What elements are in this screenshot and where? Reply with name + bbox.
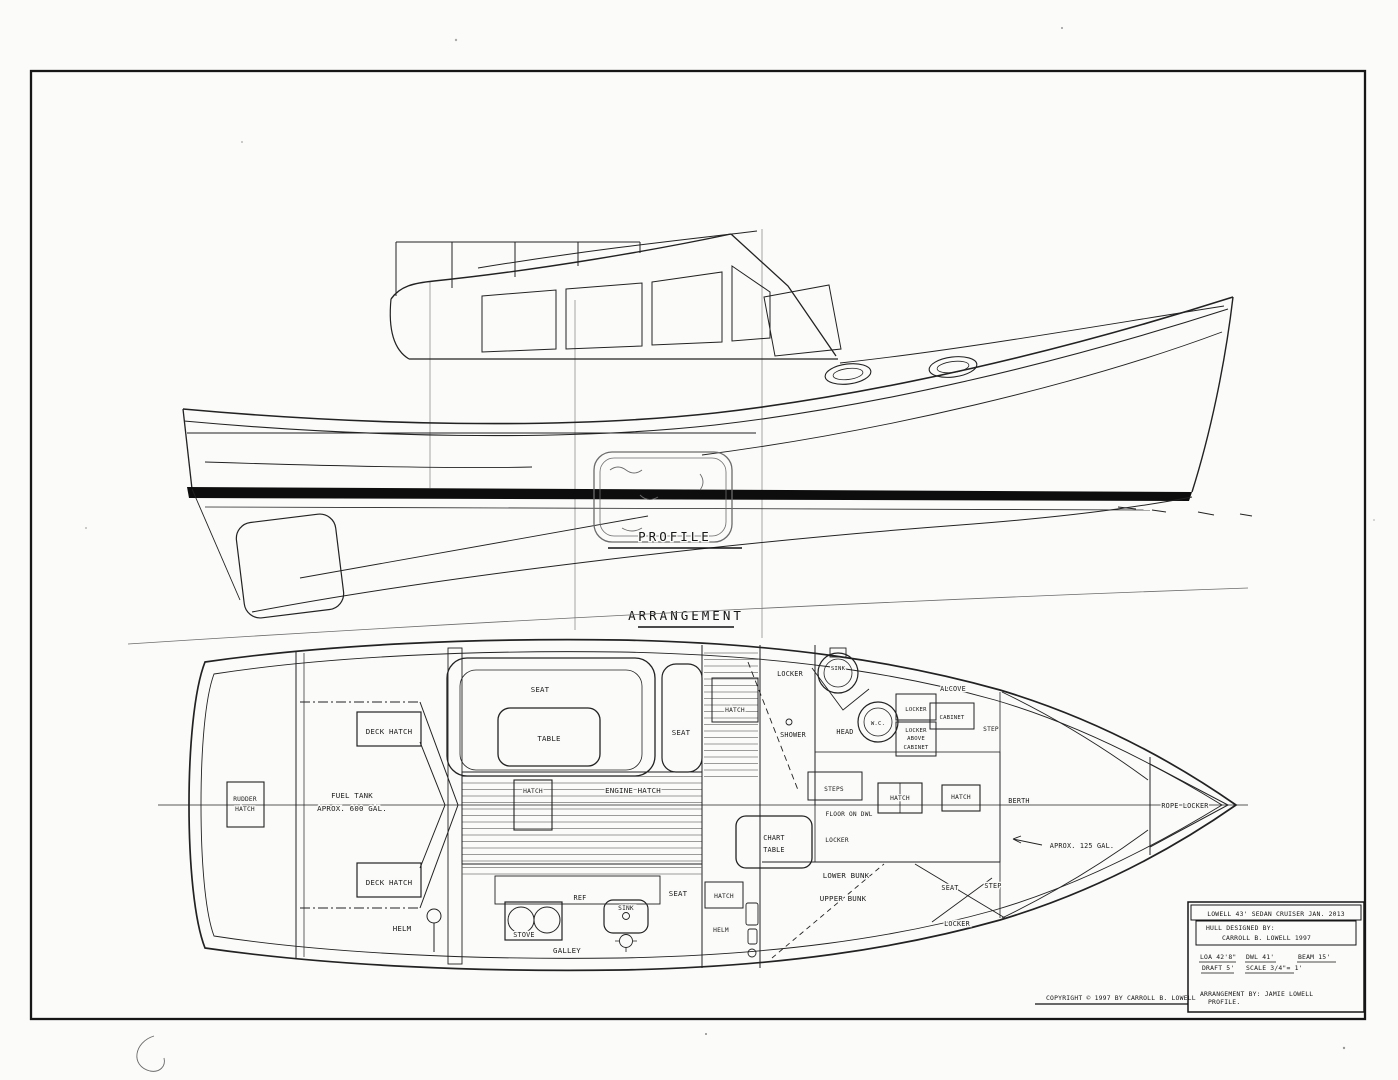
saloon-sole [462, 772, 702, 876]
label-locker: LOCKER [777, 670, 803, 678]
copyright-text: COPYRIGHT © 1997 BY CARROLL B. LOWELL [1046, 994, 1196, 1002]
waterline-band [187, 487, 1192, 501]
label-berth: BERTH [1008, 797, 1029, 805]
label-lower-bunk: LOWER BUNK [823, 871, 870, 880]
leader-arrow [1013, 836, 1042, 845]
spec-beam: BEAM 15' [1298, 953, 1330, 961]
label-rope-locker: ROPE LOCKER [1161, 802, 1209, 810]
spec-scale: SCALE 3/4"= 1' [1246, 964, 1303, 972]
label-helm: HELM [393, 924, 412, 933]
label-fuel-tank: APROX. 600 GAL. [317, 804, 387, 813]
label-engine-hatch: ENGINE HATCH [605, 786, 661, 795]
label-hatch: HATCH [725, 707, 745, 714]
stove-burner [534, 907, 560, 933]
title-block: LOWELL 43' SEDAN CRUISER JAN. 2013 HULL … [1188, 902, 1364, 1012]
label-deck-hatch: DECK HATCH [366, 727, 413, 736]
label-rudder-hatch: RUDDER [233, 796, 257, 803]
label-step: STEP [983, 726, 999, 733]
instrument [746, 903, 758, 925]
label-seat: SEAT [669, 889, 688, 898]
label-upper-bunk: UPPER BUNK [820, 894, 867, 903]
label-rudder-hatch: HATCH [235, 806, 255, 813]
propeller-shaft-line [300, 516, 648, 578]
fwd-sole [815, 752, 1000, 862]
label-cabinet: CABINET [940, 715, 965, 721]
label-table: TABLE [537, 734, 560, 743]
label-seat: SEAT [672, 728, 691, 737]
cabin-window [566, 283, 642, 349]
title-block-title: LOWELL 43' SEDAN CRUISER JAN. 2013 [1207, 910, 1345, 918]
label-hatch: HATCH [523, 788, 543, 795]
label-sink: SINK [831, 666, 846, 672]
label-shower: SHOWER [780, 731, 806, 739]
shower-drain [786, 719, 792, 725]
cabin-window [482, 290, 556, 352]
label-chart-table: TABLE [763, 846, 784, 854]
label-wc: W.C. [871, 721, 885, 727]
label-locker: LOCKER [825, 837, 849, 844]
label-galley: GALLEY [553, 946, 581, 955]
instrument [748, 929, 757, 944]
spec-loa: LOA 42'8" [1200, 953, 1236, 961]
label-locker-above: ABOVE [907, 736, 925, 742]
label-locker-above: CABINET [904, 745, 929, 751]
rudder-hatch-box [227, 782, 264, 827]
arrangement-view: ARRANGEMENT [128, 588, 1248, 970]
title-block-credit2: PROFILE. [1208, 998, 1240, 1006]
drain [620, 935, 633, 948]
label-water-tank: APROX. 125 GAL. [1050, 842, 1114, 850]
instrument [748, 949, 756, 957]
pencil-mark [137, 1036, 165, 1071]
title-block-credit: ARRANGEMENT BY: JAMIE LOWELL [1200, 990, 1313, 998]
label-ref: REF [574, 894, 587, 902]
label-hatch: HATCH [890, 795, 910, 802]
foredeck-hatch [824, 361, 872, 386]
boat-plan-sheet: PROFILE ARRANGEMENT [0, 0, 1398, 1080]
label-fuel-tank: FUEL TANK [331, 791, 373, 800]
profile-view: PROFILE [183, 229, 1252, 638]
stove-burner [508, 907, 534, 933]
roof-rail [396, 231, 757, 296]
spec-draft: DRAFT 5' [1202, 964, 1234, 972]
label-sink: SINK [618, 905, 634, 912]
label-hatch: HATCH [951, 794, 971, 801]
foredeck-hatch [928, 354, 978, 380]
scan-artifacts [85, 27, 1375, 1071]
label-locker-above: LOCKER [905, 728, 927, 734]
label-hatch: HATCH [714, 893, 734, 900]
scanned-drawing-page: PROFILE ARRANGEMENT [0, 0, 1398, 1080]
label-head: HEAD [836, 728, 853, 736]
label-stove: STOVE [513, 931, 534, 939]
door-lines [812, 668, 869, 710]
label-step: STEP [984, 882, 1001, 890]
title-block-designer: CARROLL B. LOWELL 1997 [1222, 934, 1311, 942]
fwd-steps-lines [915, 864, 1005, 922]
spec-dwl: DWL 41' [1246, 953, 1274, 961]
plan-furniture [227, 647, 1042, 958]
label-chart-table: CHART [763, 834, 784, 842]
sheet-border [31, 71, 1365, 1019]
cabin-window [732, 266, 770, 341]
label-alcove: ALCOVE [940, 685, 966, 693]
cabin-window [652, 272, 722, 345]
rudder [235, 512, 346, 619]
title-block-designer: HULL DESIGNED BY: [1206, 924, 1275, 932]
saloon-seat [447, 658, 655, 776]
label-helm: HELM [713, 927, 729, 934]
helm-wheel [427, 909, 441, 952]
label-steps: STEPS [824, 786, 844, 793]
label-locker: LOCKER [944, 920, 970, 928]
starboard-seat [662, 664, 702, 772]
copyright-strip: COPYRIGHT © 1997 BY CARROLL B. LOWELL [1035, 994, 1196, 1004]
profile-superstructure [390, 231, 978, 387]
label-locker: LOCKER [905, 707, 927, 713]
chart-table-box [736, 816, 812, 868]
profile-hull [183, 297, 1252, 516]
profile-title: PROFILE [638, 529, 712, 544]
saloon-seat-inner [460, 670, 642, 770]
label-seat: SEAT [531, 685, 550, 694]
label-seat: SEAT [941, 884, 958, 892]
label-deck-hatch: DECK HATCH [366, 878, 413, 887]
label-floor-on-dwl: FLOOR ON DWL [825, 811, 872, 818]
